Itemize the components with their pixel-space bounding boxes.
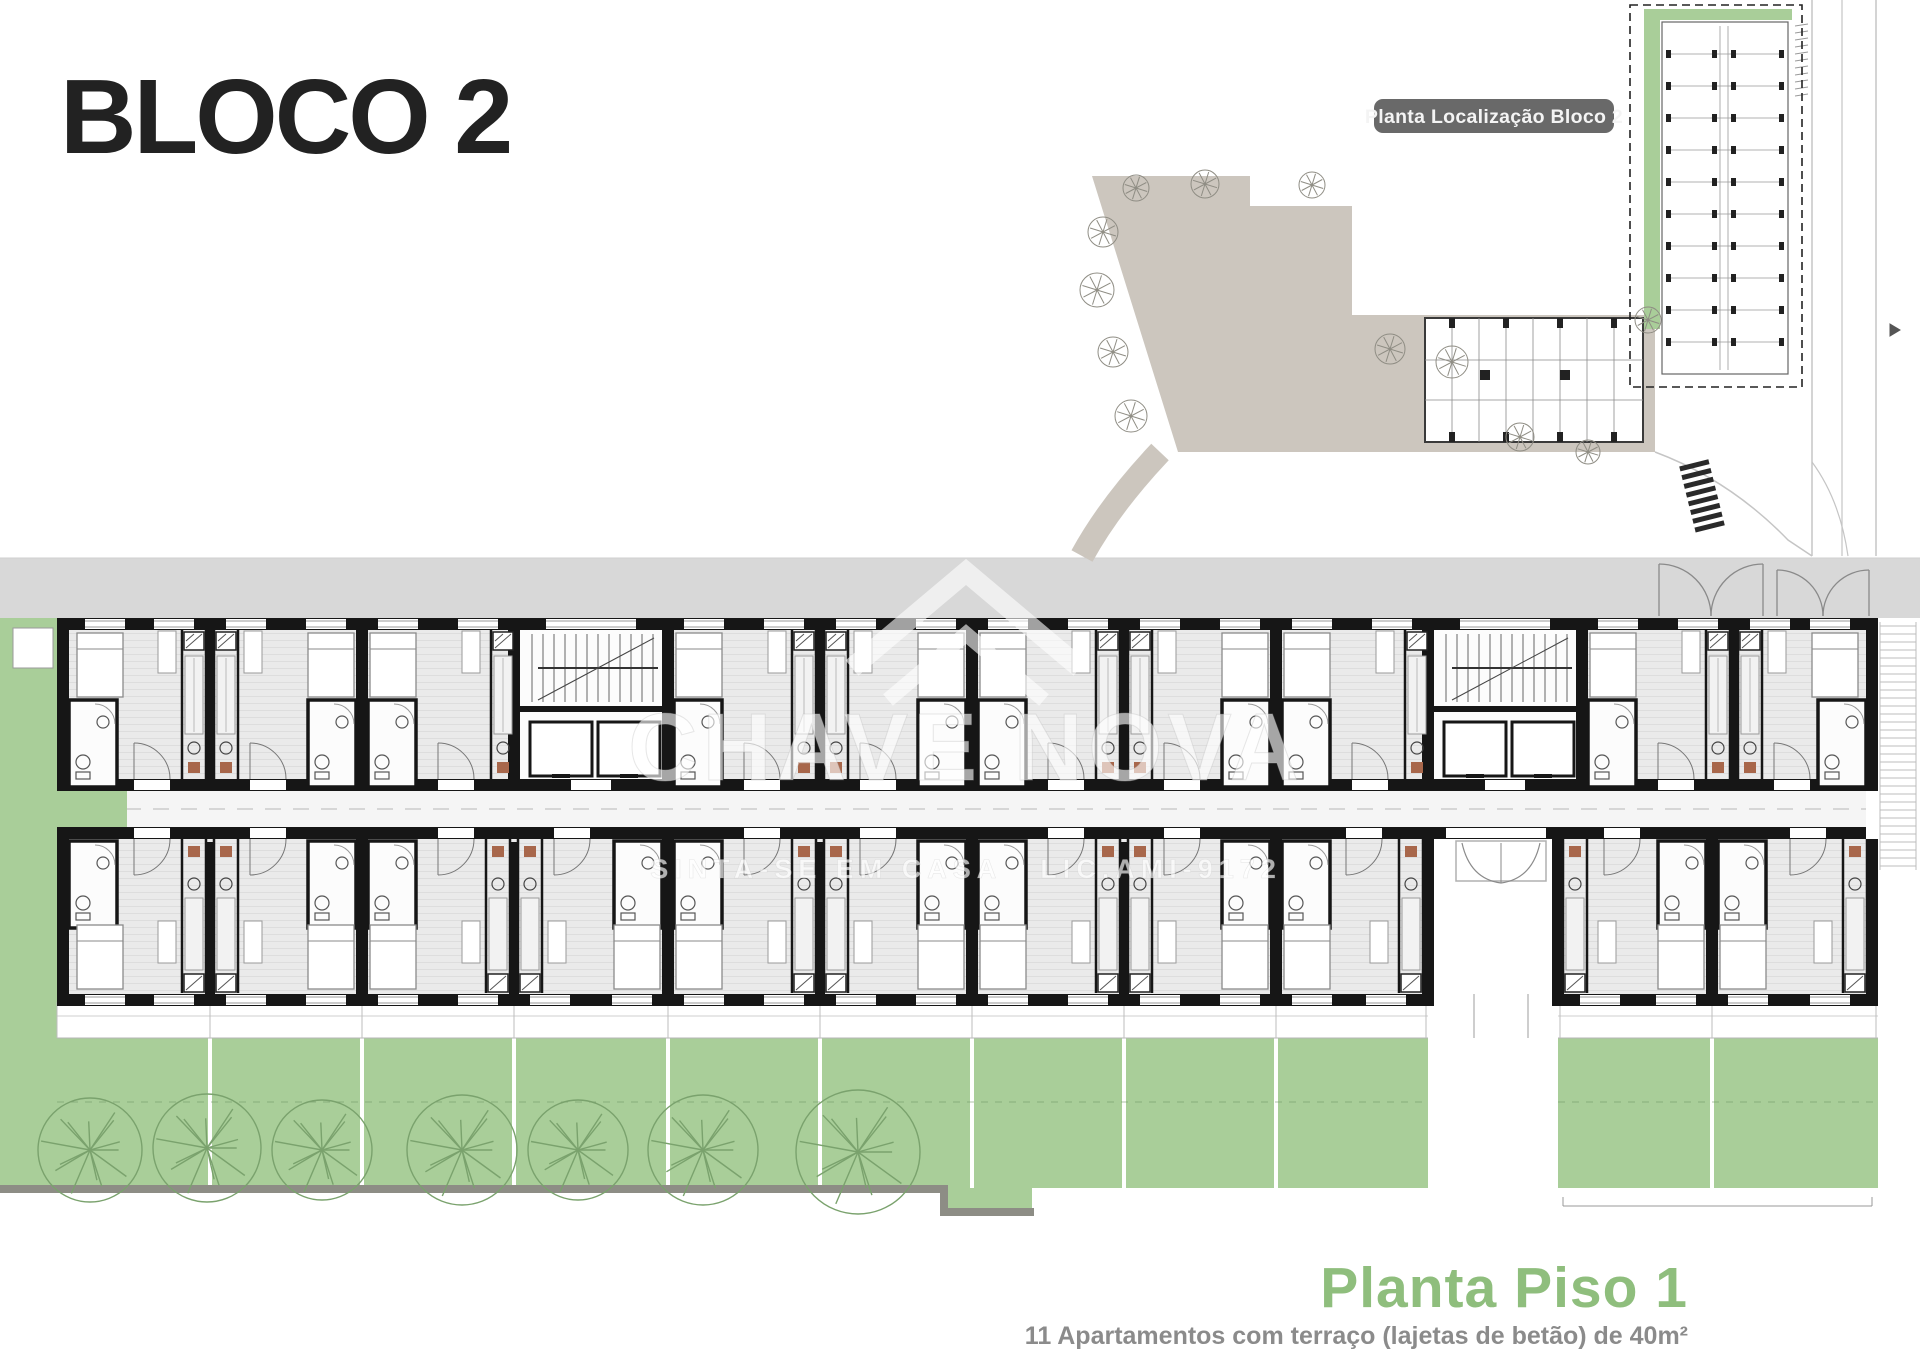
page-title: BLOCO 2 — [60, 58, 510, 176]
footer-subtitle: 11 Apartamentos com terraço (lajetas de … — [1025, 1322, 1688, 1350]
plan-canvas: CHAVE NOVA SINTA-SE EM CASALIC.AMI-9172 … — [0, 0, 1920, 1372]
page: CHAVE NOVA SINTA-SE EM CASALIC.AMI-9172 … — [0, 0, 1920, 1372]
footer-title: Planta Piso 1 — [1320, 1256, 1688, 1320]
watermark-brand: CHAVE NOVA — [628, 694, 1304, 801]
watermark-tagline: SINTA-SE EM CASALIC.AMI-9172 — [650, 854, 1282, 884]
site-plan-label: Planta Localização Bloco 2 — [1365, 99, 1623, 133]
site-plan-label-text: Planta Localização Bloco 2 — [1365, 106, 1623, 128]
floor-plan — [0, 564, 1916, 1216]
site-plan — [1080, 0, 1900, 556]
